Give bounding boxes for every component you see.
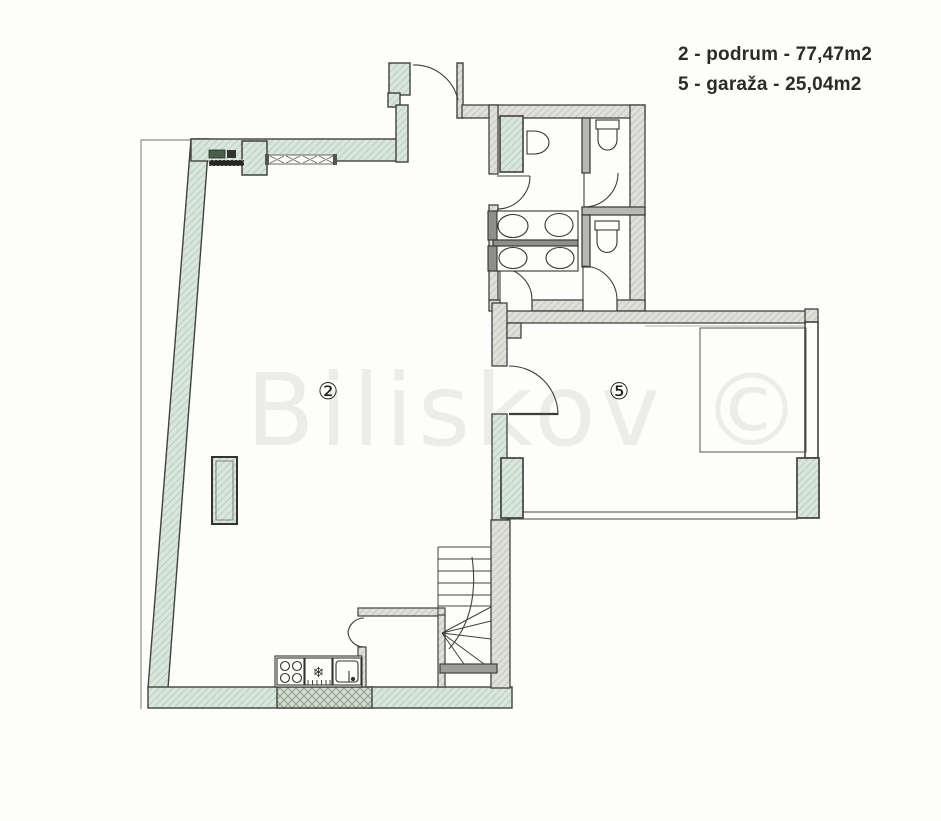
garage-top-right-corner [805, 309, 818, 323]
parking-space-outline [700, 328, 806, 452]
wall-below-garage [491, 520, 510, 688]
floor-plan-drawing: ❄ ② ⑤ [0, 0, 941, 821]
grille-end-cap [333, 154, 337, 165]
wc-bottom-wall-seg3 [617, 300, 645, 311]
washroom-door [497, 176, 530, 209]
garage-left-wall-upper [492, 303, 507, 366]
toilet-tank [595, 221, 619, 230]
bottom-wall-kitchen-section [277, 687, 372, 708]
urinal-icon [527, 131, 549, 154]
garage-door-arc [509, 366, 558, 415]
vent-detail-icon [209, 150, 225, 158]
wc-stall2-door [583, 266, 617, 300]
closet-double-door [348, 618, 364, 647]
floor-plan-page: Biliskov © 2 - podrum - 77,47m2 5 - gara… [0, 0, 941, 821]
wash-basin-icon [498, 215, 528, 238]
wc-stall1-door [584, 173, 618, 207]
closet-walls [358, 608, 497, 687]
room2-column [212, 457, 237, 524]
sink-drain [351, 677, 354, 680]
garage-top-wall [495, 311, 816, 323]
wash-basin-icon [546, 248, 574, 269]
stair-bottom-wall [440, 664, 497, 673]
garage-right-column [797, 458, 819, 518]
room2-number-label: ② [318, 379, 339, 405]
stair-treads [438, 559, 491, 606]
stall-wall-lower [582, 215, 590, 267]
counter-wall-stub [488, 246, 497, 271]
stove-burner [281, 674, 290, 683]
closet-top-wall [358, 608, 445, 616]
garage-walls [491, 303, 819, 688]
ventilation-shaft [500, 116, 523, 172]
wash-basin-icon [499, 248, 527, 269]
wc-bottom-wall-seg2 [532, 300, 583, 311]
grille-end-cap [265, 154, 269, 165]
garage-wall-notch [507, 323, 521, 338]
stall-wall-upper [582, 118, 590, 173]
stair-winder-treads [442, 607, 491, 664]
counter-divider-wall [493, 240, 578, 246]
top-wall-column [242, 141, 267, 175]
counter-wall-stub [488, 211, 497, 240]
garage-bottom-wall [507, 512, 797, 519]
vent-strip-icon [209, 160, 244, 166]
legend-room2: 2 - podrum - 77,47m2 [678, 40, 872, 70]
legend: 2 - podrum - 77,47m2 5 - garaža - 25,04m… [678, 40, 872, 100]
room5-number-label: ⑤ [609, 379, 630, 405]
toilet-bowl-icon [598, 129, 617, 150]
closet-right-wall [438, 615, 445, 687]
entry-left-jamb [389, 63, 410, 95]
garage-right-wall [805, 322, 818, 458]
toilet-tank [596, 120, 619, 129]
wash-basin-icon [545, 214, 573, 237]
staircase [438, 547, 491, 664]
toilet-bowl-icon [597, 230, 617, 253]
legend-room5: 5 - garaža - 25,04m2 [678, 70, 872, 100]
left-slanted-wall [148, 139, 209, 688]
vent-detail-icon [227, 150, 236, 158]
entry-door-arc [413, 65, 458, 100]
garage-left-column [501, 458, 523, 518]
stove-burner [293, 674, 302, 683]
stove-burner [281, 662, 290, 671]
entry-left-connector-wall [396, 105, 408, 162]
freezer-snowflake-icon: ❄ [313, 665, 325, 681]
washroom-hall-door [500, 268, 532, 300]
stove-burner [293, 662, 302, 671]
wc-left-wall-upper [489, 105, 498, 174]
stall-divider-wall [582, 207, 645, 215]
